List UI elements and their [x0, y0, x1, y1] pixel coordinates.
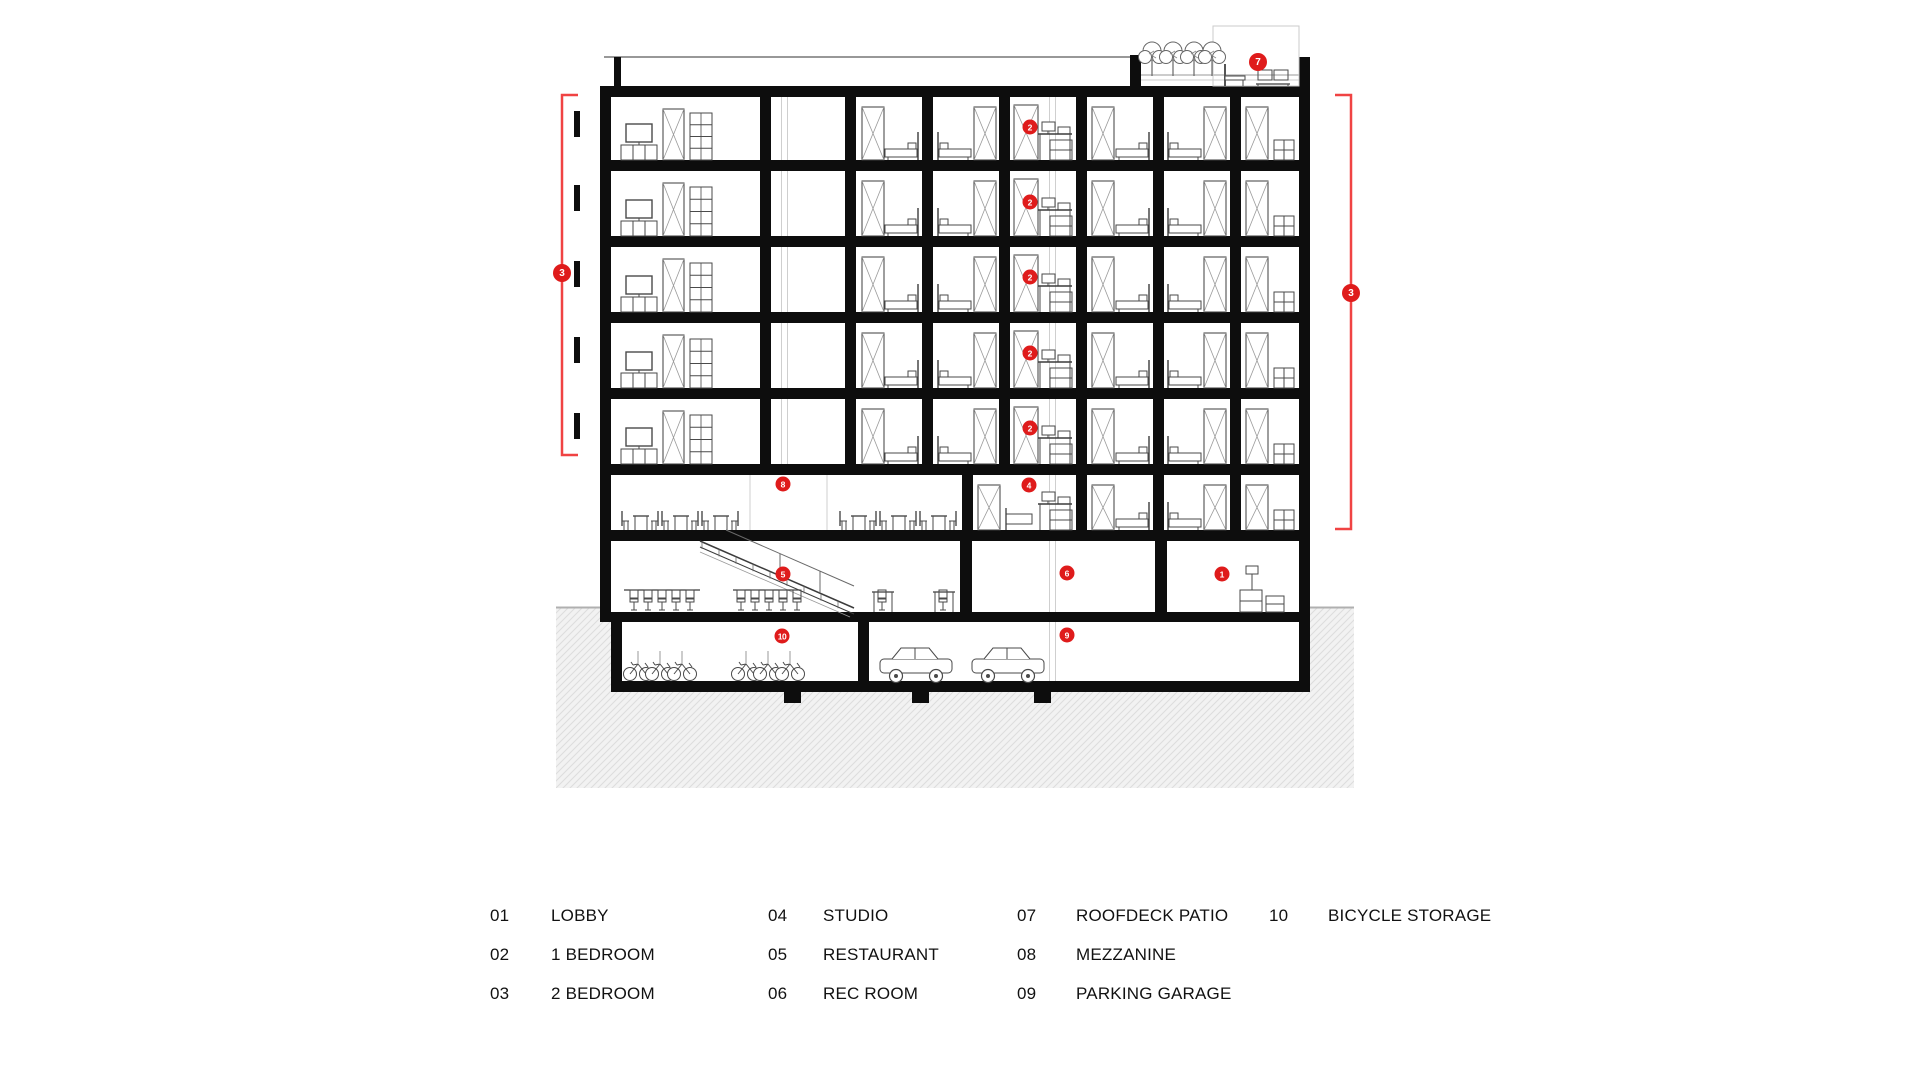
legend-number: 06	[768, 984, 787, 1004]
legend-label: MEZZANINE	[1076, 945, 1176, 965]
legend-label: ROOFDECK PATIO	[1076, 906, 1228, 926]
legend-number: 08	[1017, 945, 1036, 965]
legend-number: 01	[490, 906, 509, 926]
legend-label: 2 BEDROOM	[551, 984, 655, 1004]
architectural-section-page: 7332222248561109 01LOBBY021 BEDROOM032 B…	[0, 0, 1920, 1080]
legend-label: RESTAURANT	[823, 945, 939, 965]
legend-number: 10	[1269, 906, 1288, 926]
legend-label: 1 BEDROOM	[551, 945, 655, 965]
legend-number: 07	[1017, 906, 1036, 926]
legend-label: REC ROOM	[823, 984, 918, 1004]
legend-label: PARKING GARAGE	[1076, 984, 1232, 1004]
legend: 01LOBBY021 BEDROOM032 BEDROOM04STUDIO05R…	[0, 0, 1920, 1080]
legend-label: STUDIO	[823, 906, 888, 926]
legend-label: LOBBY	[551, 906, 609, 926]
legend-number: 09	[1017, 984, 1036, 1004]
legend-number: 03	[490, 984, 509, 1004]
legend-number: 05	[768, 945, 787, 965]
legend-label: BICYCLE STORAGE	[1328, 906, 1491, 926]
legend-number: 04	[768, 906, 787, 926]
legend-number: 02	[490, 945, 509, 965]
